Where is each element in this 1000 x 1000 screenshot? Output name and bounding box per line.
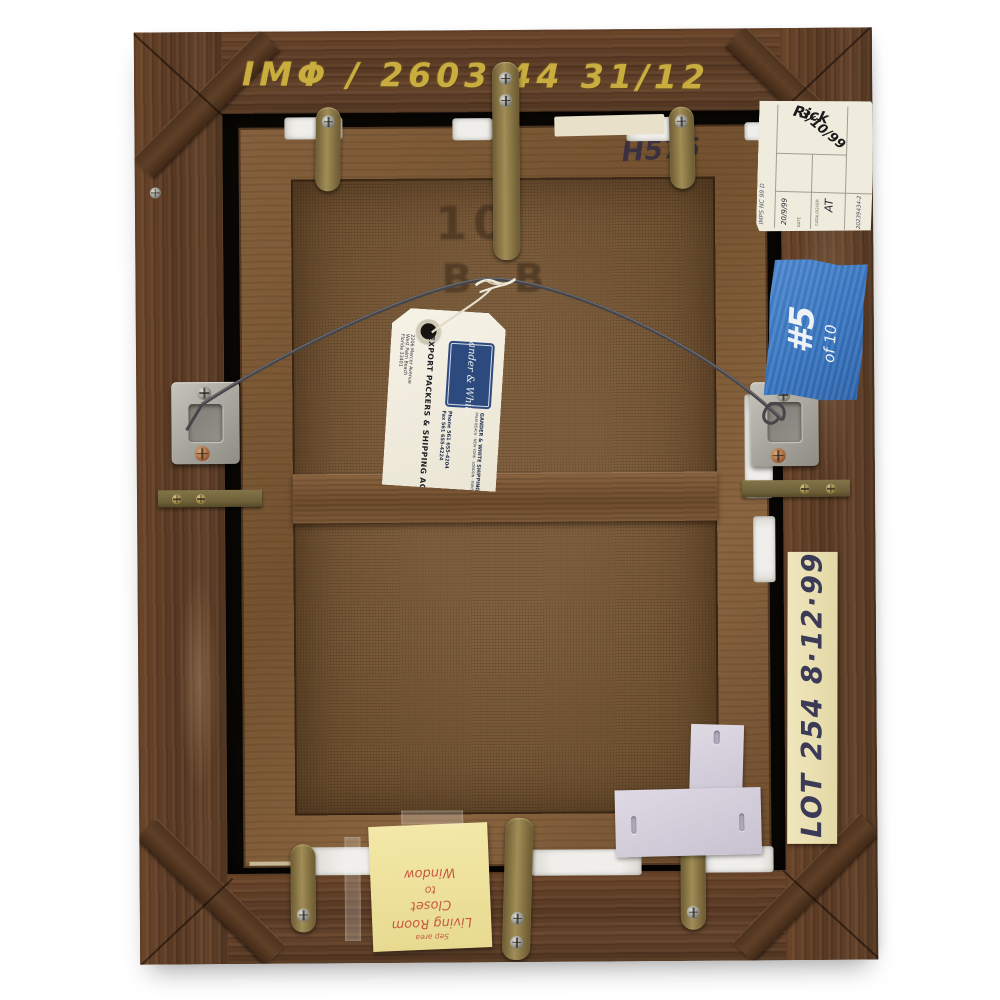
label-edge-right-text: 20239434-2 xyxy=(856,111,865,229)
screw xyxy=(150,187,161,198)
label-cataloguer-label: CATALOGUER xyxy=(814,160,821,226)
picture-frame-back: IMΦ / 2603 44 31/12 10 B B H575 xyxy=(134,27,878,964)
blue-tape-text: #5 of 10 xyxy=(778,266,844,393)
label-gridline xyxy=(844,107,848,230)
label-date-value: 20/9/99 xyxy=(780,157,790,225)
photo-backdrop: IMΦ / 2603 44 31/12 10 B B H575 xyxy=(0,0,1000,1000)
blue-tape-label: #5 of 10 xyxy=(764,257,869,403)
clear-tape xyxy=(401,810,463,824)
label-slot xyxy=(739,813,744,831)
label-date-label: DATE xyxy=(796,199,802,227)
lot-number-tape: LOT 254 8·12·99 xyxy=(787,552,838,844)
label-slot xyxy=(714,730,720,744)
label-gridline xyxy=(774,105,778,228)
lot-number-text: LOT 254 8·12·99 xyxy=(795,558,828,838)
label-slot xyxy=(631,816,636,834)
blank-label-horizontal xyxy=(614,787,762,858)
label-edge-left-text: IMPS NC 99 D xyxy=(758,106,768,224)
label-cataloguer-value: AT xyxy=(822,172,836,212)
clear-tape xyxy=(344,837,361,941)
sticky-note: Sep area Living Room Closet to Window xyxy=(368,822,492,952)
sticky-note-text: Sep area Living Room Closet to Window xyxy=(368,822,492,952)
catalog-label: IMPS NC 99 D Rick 3/10/99 20/9/99 DATE C… xyxy=(756,98,876,234)
